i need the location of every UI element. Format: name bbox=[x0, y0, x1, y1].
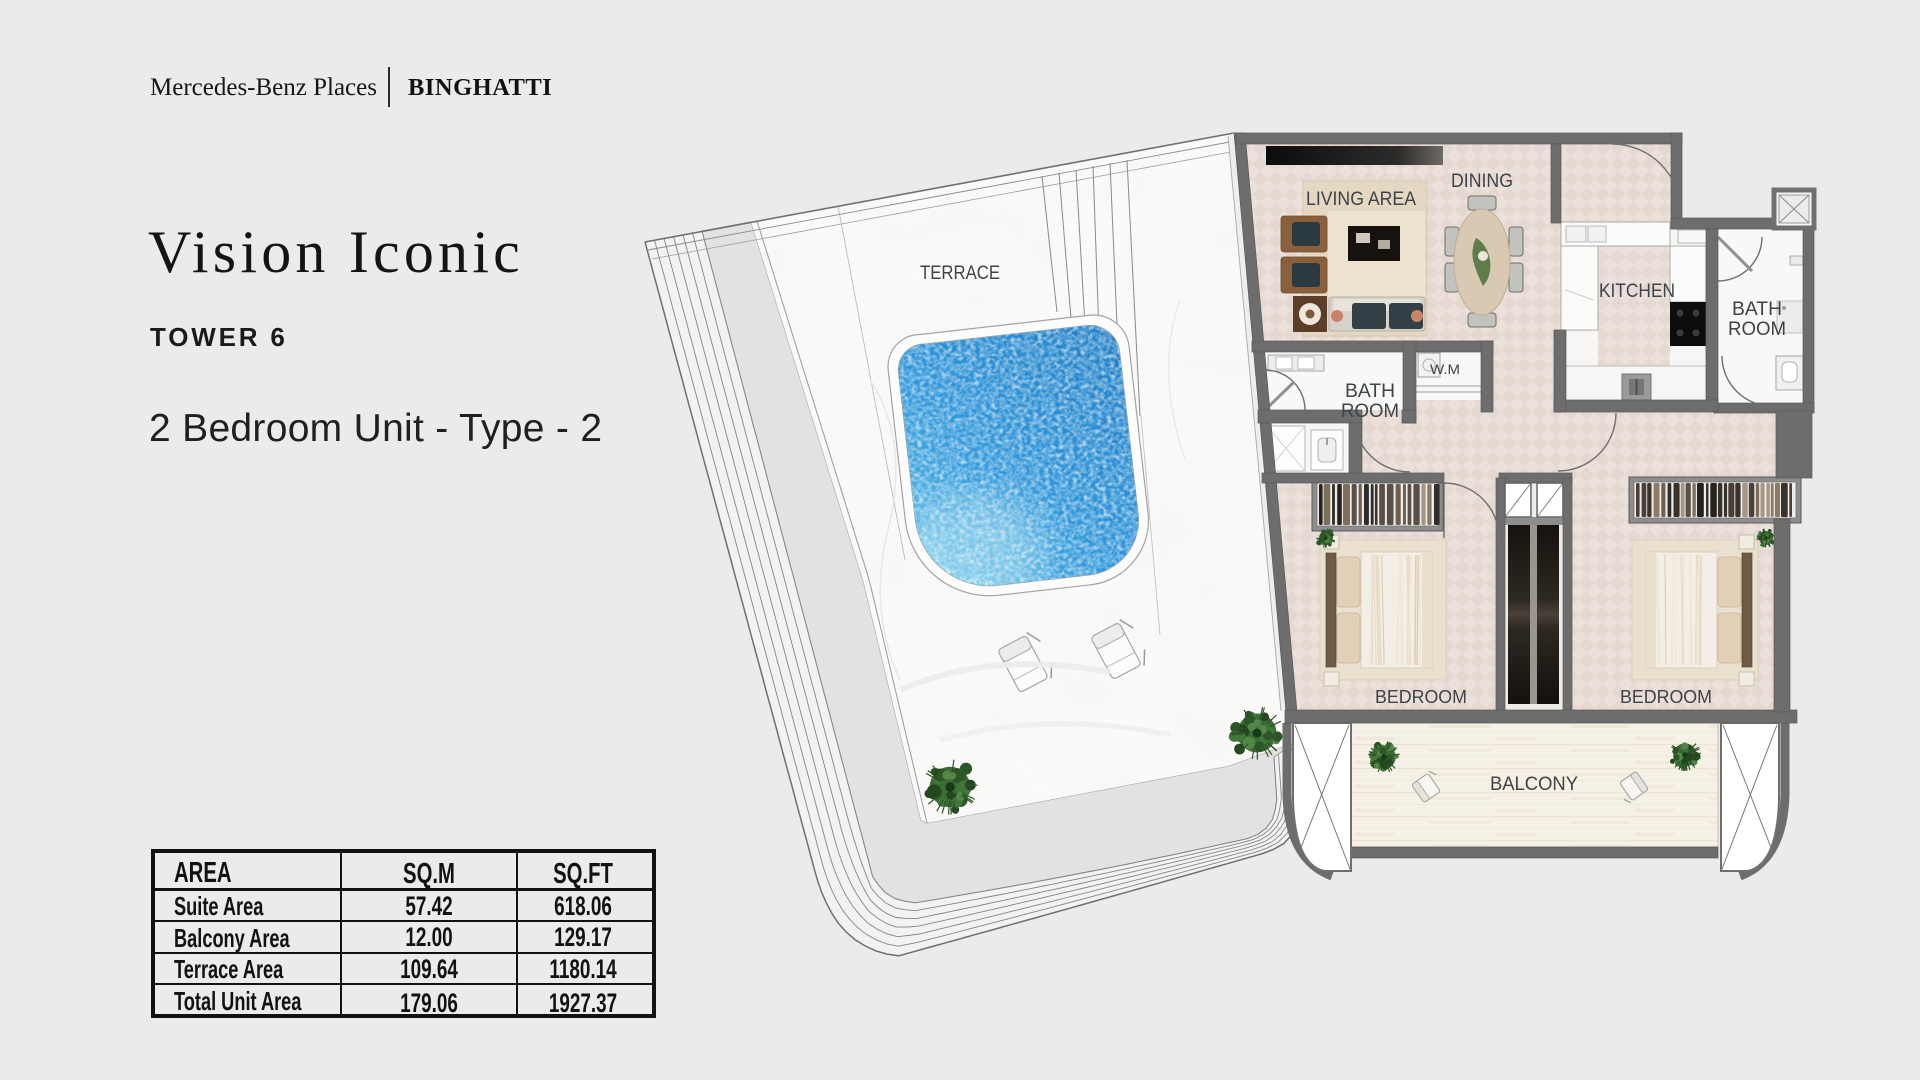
svg-text:LIVING AREA: LIVING AREA bbox=[1306, 189, 1416, 210]
svg-text:BATH: BATH bbox=[1732, 299, 1782, 320]
svg-text:W.M: W.M bbox=[1430, 361, 1460, 377]
svg-text:ROOM: ROOM bbox=[1728, 319, 1786, 340]
svg-text:TERRACE: TERRACE bbox=[920, 263, 1000, 284]
svg-text:BEDROOM: BEDROOM bbox=[1620, 687, 1712, 707]
svg-text:KITCHEN: KITCHEN bbox=[1599, 281, 1675, 302]
svg-text:DINING: DINING bbox=[1451, 171, 1513, 192]
svg-text:BALCONY: BALCONY bbox=[1490, 774, 1578, 795]
svg-text:ROOM: ROOM bbox=[1341, 401, 1399, 422]
svg-text:BATH: BATH bbox=[1345, 381, 1395, 402]
svg-text:BEDROOM: BEDROOM bbox=[1375, 687, 1467, 707]
